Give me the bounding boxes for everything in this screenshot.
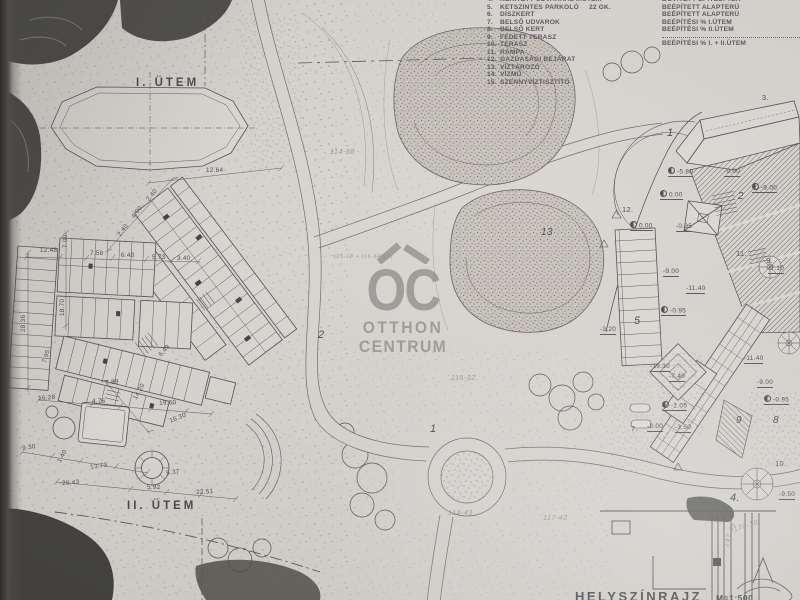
annotation: -11.40: [686, 286, 705, 294]
annotation: 16.30: [169, 413, 187, 425]
annotation: -9.00: [752, 183, 777, 193]
annotation: 12.: [622, 206, 633, 214]
benchmark-icon: [764, 395, 771, 402]
legend-item-number: 11.: [487, 49, 500, 57]
annotation: 9.: [766, 257, 773, 265]
legend-item-label: BELSŐ UDVAROK: [500, 19, 560, 26]
annotation: -2.05: [662, 401, 687, 411]
legend-item: 11.RÁMPA: [487, 49, 659, 57]
annotation: 11.: [736, 250, 747, 258]
legend-item-label: KETSZINTES PARKOLÓ: [500, 4, 579, 11]
annotation: -5.80: [668, 167, 693, 177]
pencil-note: 147-45: [723, 522, 738, 548]
legend-item-label: SZENNYVÍZTISZTÍTÓ: [500, 79, 570, 86]
annotation: 14.20: [133, 383, 147, 401]
legend-item: 5.KETSZINTES PARKOLÓ22 GK.: [487, 4, 659, 12]
legend-item: 7.BELSŐ UDVAROK: [487, 19, 659, 27]
legend-item-number: 12.: [487, 56, 500, 64]
legend-item: 6.DÍSZKERT: [487, 11, 659, 19]
annotation: -0.95: [764, 395, 789, 405]
legend-item-number: 14.: [487, 71, 500, 79]
annotation: -9.00: [724, 169, 740, 177]
legend-summary-item: BEÉPÍTÉSI % I. + II.ÜTEM: [662, 40, 800, 48]
annotation-layer: I. ÜTEMII. ÜTEM12.642.404.002.4012.487.5…: [0, 0, 800, 600]
annotation: 5.92: [147, 485, 160, 491]
legend-item-label: RÁMPA: [500, 49, 525, 56]
legend-item-number: 10.: [487, 41, 500, 49]
phase-1-label: I. ÜTEM: [136, 78, 199, 90]
pencil-note: 114-43: [448, 510, 473, 517]
annotation: -9.50: [779, 492, 795, 500]
legend-item-number: 9.: [487, 34, 500, 42]
legend-item: 13.VÍZTÁROZÓ: [487, 64, 659, 72]
annotation: 18.70: [60, 299, 66, 316]
legend-item-label: GAZDASÁGI BEJÁRAT: [500, 56, 575, 63]
annotation: 12.48: [40, 248, 57, 254]
legend-item-number: 15.: [487, 79, 500, 87]
legend-item: 10.TERASZ: [487, 41, 659, 49]
benchmark-icon: [661, 306, 668, 313]
annotation: 5.37: [166, 469, 180, 477]
legend-item-number: 7.: [487, 19, 500, 27]
annotation: 19.60: [159, 400, 177, 407]
legend-item-label: VÍZMŰ: [500, 71, 522, 78]
annotation: 9.30: [22, 444, 36, 452]
legend-item-label: VÍZTÁROZÓ: [500, 64, 540, 71]
annotation: -9.00: [663, 269, 679, 277]
pencil-note: 115-18 + (16-64)21(: [333, 255, 393, 261]
annotation: 7.95: [42, 349, 52, 364]
legend-divider: [662, 37, 800, 38]
benchmark-icon: [752, 183, 759, 190]
legend-summary-item: BEÉPÍTÉSI % II.ÜTEM: [662, 26, 800, 34]
annotation: 16.28: [38, 395, 56, 402]
annotation: -3.20: [600, 327, 616, 335]
benchmark-icon: [668, 167, 675, 174]
annotation: 4.76: [92, 399, 105, 405]
annotation: -19.30: [650, 364, 670, 372]
annotation: 22.51: [196, 489, 214, 496]
annotation: 9: [736, 416, 742, 426]
benchmark-icon: [660, 190, 667, 197]
legend-item-number: 6.: [487, 11, 500, 19]
benchmark-icon: [662, 401, 669, 408]
annotation: 4.00: [131, 205, 144, 219]
annotation: -2.00: [647, 424, 663, 432]
annotation: 0.00: [630, 221, 653, 231]
phase-2-label: II. ÜTEM: [127, 501, 196, 513]
annotation: -0.95: [661, 306, 686, 316]
annotation: 7.88: [105, 379, 119, 387]
annotation: 2.40: [117, 223, 130, 237]
legend-summary-item: BEÉPÍTETT ALAPTERÜ: [662, 4, 800, 12]
annotation: 7.58: [90, 251, 103, 257]
drawing-title: HELYSZÍNRAJZ: [575, 589, 702, 600]
annotation: 28.36: [21, 315, 27, 332]
annotation: -11.40: [744, 356, 763, 364]
legend-item-label: DÍSZKERT: [500, 11, 535, 18]
legend-item: 15.SZENNYVÍZTISZTÍTÓ: [487, 79, 659, 87]
legend-item-label: FEDETT TERASZ: [500, 34, 556, 41]
legend-right-column: BŐVÍTETT ÉPÍTÉSI TERBEÉPÍTETT ALAPTERÜBE…: [662, 0, 800, 47]
legend-item-number: 5.: [487, 4, 500, 12]
pencil-note: 114-88: [330, 149, 355, 156]
annotation: -7.40: [669, 374, 685, 382]
annotation: 6.49: [158, 344, 172, 358]
pencil-note: 115-32: [451, 375, 476, 382]
benchmark-icon: [630, 221, 637, 228]
legend-item: 8.BELSŐ KERT: [487, 26, 659, 34]
annotation: 6.48: [121, 253, 134, 259]
legend-item-number: 8.: [487, 26, 500, 34]
legend-summary-item: BEÉPÍTETT ALAPTERÜ: [662, 11, 800, 19]
annotation: 26.43: [62, 480, 80, 487]
annotation: -0.95: [676, 224, 692, 232]
annotation: 13.73: [90, 463, 108, 472]
annotation: -9.00: [757, 380, 773, 388]
annotation: 1: [667, 128, 673, 139]
legend-item: 9.FEDETT TERASZ: [487, 34, 659, 42]
annotation: 5.73: [152, 255, 165, 261]
annotation: 3.40: [177, 256, 190, 262]
reservoir-13-label: 13: [541, 228, 553, 238]
annotation: 2: [738, 192, 744, 202]
annotation: -7.10: [768, 266, 784, 274]
pencil-note: 170-10: [733, 519, 759, 534]
annotation: 1.40: [57, 449, 69, 464]
legend-item-extra: 22 GK.: [589, 4, 611, 11]
annotation: 2: [318, 330, 324, 341]
drawing-scale: M=1:500: [716, 593, 753, 600]
annotation: 10.: [775, 460, 786, 468]
annotation: 8: [773, 416, 779, 426]
legend-item: 12.GAZDASÁGI BEJÁRAT: [487, 56, 659, 64]
legend-left-column: 4.KERÍTETT UDVARRAL II.ÜTEM5.KETSZINTES …: [487, 0, 659, 86]
legend-item-label: BELSŐ KERT: [500, 26, 545, 33]
legend-item-label: TERASZ: [500, 41, 528, 48]
pencil-note: 117-42: [543, 515, 568, 522]
site-plan-photo: OC OTTHON CENTRUM I. ÜTEMII. ÜTEM12.642.…: [0, 0, 800, 600]
annotation: 12.64: [206, 168, 223, 174]
title-block: HELYSZÍNRAJZM=1:500: [575, 588, 753, 600]
annotation: 7.: [631, 425, 638, 433]
annotation: 2.40: [146, 188, 159, 202]
annotation: 4.: [730, 493, 740, 504]
annotation: -3.50: [675, 425, 691, 433]
legend-item: 14.VÍZMŰ: [487, 71, 659, 79]
annotation: 0.00: [660, 190, 683, 200]
annotation: 7.00: [63, 235, 69, 248]
annotation: 5: [634, 316, 640, 327]
legend-item-number: 13.: [487, 64, 500, 72]
area-1-label: 1: [430, 424, 436, 435]
legend-summary-item: BEÉPÍTÉSI % I.ÜTEM: [662, 19, 800, 27]
annotation: 3.: [762, 94, 769, 102]
